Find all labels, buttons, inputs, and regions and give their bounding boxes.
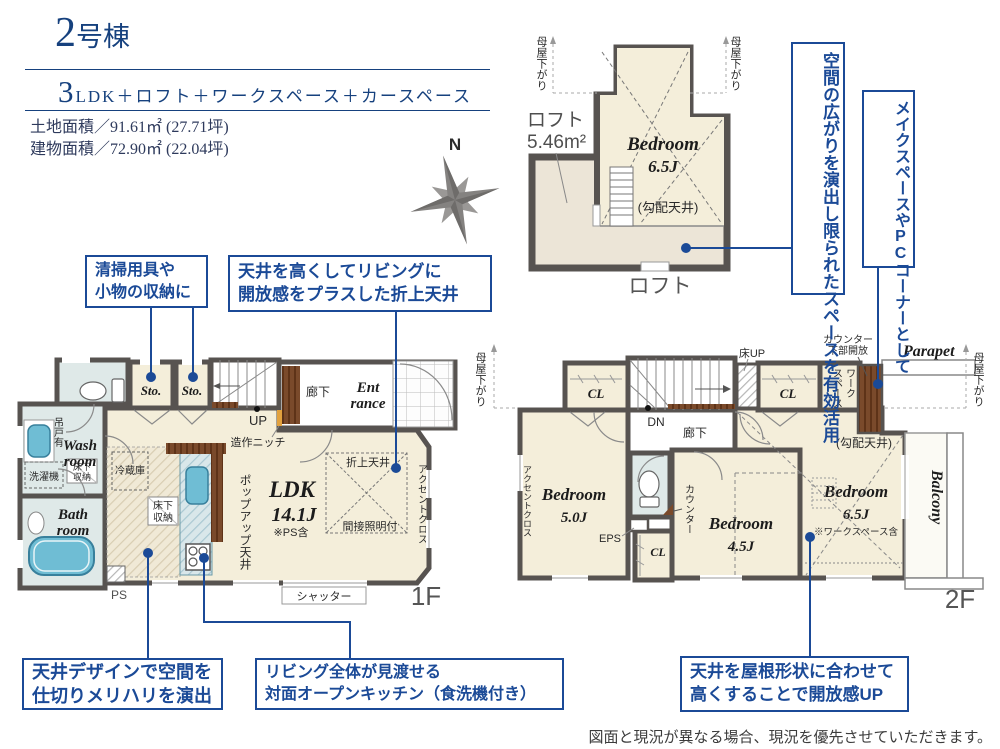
entrance-label-1: Ent (356, 380, 380, 396)
loft-area-label-1: ロフト (527, 110, 584, 131)
compass: N (400, 130, 510, 250)
bath-room-label-1: Bath (57, 507, 88, 523)
ps-label: PS (111, 588, 127, 602)
hall-label-1f: 廊下 (306, 384, 330, 399)
sto1-label: Sto. (141, 383, 162, 398)
svg-text:収納: 収納 (73, 471, 91, 482)
building-suffix: 号棟 (76, 22, 130, 52)
bedroom45-label: Bedroom (708, 514, 773, 533)
loft-door-opening (593, 205, 600, 226)
floorplan-flyer: 2号棟 3LDK＋ロフト＋ワークスペース＋カースペース 土地面積／91.61㎡ … (0, 0, 1000, 749)
callout-storage-line1: 清掃用具や (95, 260, 198, 282)
callout-dot-kitchen (199, 553, 209, 563)
toilet-icon-2f (639, 471, 659, 507)
dn-label: DN (647, 415, 664, 429)
bedroom65-size: 6.5J (843, 507, 870, 523)
cl-label-2: CL (780, 386, 797, 401)
area-info: 土地面積／91.61㎡ (27.71坪) 建物面積／72.90㎡ (22.04坪… (30, 117, 229, 162)
shutter-label: シャッター (297, 590, 352, 603)
callout-roof: 天井を屋根形状に合わせて 高くすることで開放感UP (680, 656, 909, 712)
callout-line-roof (809, 537, 811, 657)
sloped-ceiling-2f: (勾配天井) (836, 436, 892, 450)
callout-coffered-line2: 開放感をプラスした折上天井 (238, 284, 482, 307)
building-area: 建物面積／72.90㎡ (22.04坪) (30, 139, 229, 161)
loft-stairs (610, 167, 633, 226)
up-label: UP (249, 413, 267, 428)
wash-window (17, 426, 23, 458)
parapet-right (947, 433, 963, 581)
niche-label: 造作ニッチ (231, 435, 286, 449)
entrance-wood-floor (282, 366, 300, 424)
svg-text:母屋下がり: 母屋下がり (474, 352, 487, 407)
svg-text:間接照明付: 間接照明付 (343, 520, 398, 533)
land-area: 土地面積／91.61㎡ (27.71坪) (30, 117, 229, 139)
loft-room-size: 6.5J (648, 157, 678, 176)
ldk-label: LDK (268, 477, 317, 502)
building-title: 2号棟 (55, 12, 130, 54)
kitchen-sink-icon (186, 467, 208, 504)
loft-area-label-2: 5.46m² (527, 132, 586, 153)
ldk-size-label: 14.1J (272, 504, 318, 526)
callout-dot-coffered (391, 463, 401, 473)
toilet-bowl-icon (80, 382, 106, 400)
stairs-1f (211, 360, 279, 412)
building-number: 2 (55, 10, 76, 56)
plan-rooms-count: 3 (58, 74, 76, 109)
bath-room-label-2: room (57, 523, 90, 539)
svg-text:折上天井: 折上天井 (346, 455, 390, 469)
underfloor-storage-kitchen: 床下 収納 (148, 497, 178, 525)
sto2-label: Sto. (182, 383, 203, 398)
bedroom45-size: 4.5J (727, 539, 755, 555)
accent-cloth-label-2f: アクセントクロス (522, 465, 532, 537)
disclaimer: 図面と現況が異なる場合、現況を優先させていただきます。 (588, 726, 992, 747)
toilet-tank-icon (112, 379, 124, 402)
floor-up-label: 床UP (739, 346, 765, 360)
counter-label: カウンター (683, 484, 695, 534)
bedroom65-label: Bedroom (823, 482, 888, 501)
callout-coffered-line1: 天井を高くしてリビングに (238, 261, 482, 284)
popup-ceiling-label: ポップアップ天井 (238, 474, 252, 571)
callout-kitchen: リビング全体が見渡せる 対面オープンキッチン（食洗機付き） (255, 658, 564, 710)
eps-label: EPS (599, 533, 621, 545)
cl-label-1: CL (588, 386, 605, 401)
svg-text:収納: 収納 (153, 511, 173, 524)
fridge-label: 冷蔵庫 (115, 464, 145, 477)
callout-ceiling-line1: 天井デザインで空間を (32, 660, 213, 684)
callout-loft-line2: 限られたスペースを有効活用 (796, 222, 840, 443)
loft-eaves-right: 母屋下がり (690, 36, 742, 93)
niche-icon (277, 410, 282, 426)
callout-dot-loft (681, 243, 691, 253)
second-floor-plan: DN 廊下 CL CL CL EPS カウンター Bedroom 5.0J Be… (460, 330, 1000, 615)
ldk-note: ※PS含 (274, 525, 309, 539)
loft-sloped-ceiling: (勾配天井) (638, 200, 699, 215)
bedroom5-label: Bedroom (541, 485, 606, 504)
loft-room-name: Bedroom (626, 134, 699, 155)
floor-up-area (737, 364, 758, 408)
counter-wood-side (211, 443, 223, 542)
svg-text:母屋下がり: 母屋下がり (535, 36, 548, 91)
callout-dot-pc (873, 379, 883, 389)
plan-type: 3LDK＋ロフト＋ワークスペース＋カースペース (58, 74, 472, 110)
wash-basin-icon (28, 425, 50, 457)
callout-loft-line1: 空間の広がりを演出し (796, 52, 840, 222)
callout-dot-roof (805, 532, 815, 542)
cl-label-3: CL (650, 545, 665, 559)
callout-pc-line2: PCコーナーとして (867, 228, 910, 374)
loft-window (641, 262, 669, 271)
callout-loft-space: 空間の広がりを演出し 限られたスペースを有効活用 (791, 42, 845, 295)
eaves-2f-left: 母屋下がり (474, 344, 518, 408)
floor1-caption: 1F (411, 581, 441, 610)
balcony-label: Balcony (928, 469, 945, 525)
callout-line-loft (686, 247, 791, 249)
callout-line-ceiling (147, 553, 149, 658)
hanging-cabinet-label: 吊戸有 (52, 417, 64, 448)
accent-cloth-label-1f: アクセントクロス (416, 464, 428, 544)
wash-room-label-1: Wash (63, 438, 97, 454)
compass-north-label: N (449, 135, 461, 154)
svg-text:母屋下がり: 母屋下がり (972, 352, 985, 407)
callout-line-kitchen-c (349, 621, 351, 658)
callout-dot-storage-1 (146, 372, 156, 382)
workspace-label-1: ワーク (844, 368, 855, 398)
bedroom5-size: 5.0J (561, 510, 588, 526)
callout-line-kitchen-a (203, 558, 205, 622)
callout-coffered: 天井を高くしてリビングに 開放感をプラスした折上天井 (228, 255, 492, 312)
loft-plan: 母屋下がり 母屋下がり ロフト 5.46m² Bedroom 6.5J (勾配天… (505, 25, 760, 300)
svg-text:床下: 床下 (153, 499, 173, 512)
callout-kitchen-line1: リビング全体が見渡せる (265, 662, 554, 684)
callout-pc-corner: メイクスペースや PCコーナーとして (862, 90, 915, 268)
callout-line-storage-1 (150, 308, 152, 377)
floor2-caption: 2F (945, 584, 975, 614)
plan-type-text: LDK＋ロフト＋ワークスペース＋カースペース (76, 87, 473, 106)
compass-star-icon (400, 144, 510, 250)
callout-storage: 清掃用具や 小物の収納に (85, 255, 208, 308)
divider (25, 110, 490, 111)
wash-room-label-2: room (64, 454, 97, 470)
callout-roof-line2: 高くすることで開放感UP (690, 684, 899, 707)
hall-label-2f: 廊下 (683, 425, 707, 440)
callout-line-storage-2 (192, 308, 194, 377)
entrance-label-2: rance (351, 396, 386, 412)
callout-ceiling-design: 天井デザインで空間を 仕切りメリハリを演出 (22, 658, 223, 710)
callout-kitchen-line2: 対面オープンキッチン（食洗機付き） (265, 684, 554, 706)
bedroom65-note: ※ワークスペース含 (814, 526, 899, 538)
loft-eaves-left: 母屋下がり (535, 36, 597, 93)
first-floor-plan: Sto. Sto. UP 洗濯機 床下 (8, 348, 470, 610)
callout-ceiling-line2: 仕切りメリハリを演出 (32, 684, 213, 708)
callout-line-kitchen-b (203, 621, 351, 623)
callout-dot-storage-2 (188, 372, 198, 382)
callout-roof-line1: 天井を屋根形状に合わせて (690, 661, 899, 684)
pipe-space (107, 566, 125, 582)
svg-text:母屋下がり: 母屋下がり (729, 36, 742, 91)
toilet-window (62, 357, 90, 363)
callout-dot-ceiling (143, 548, 153, 558)
bath-window (17, 540, 23, 568)
callout-storage-line2: 小物の収納に (95, 282, 198, 304)
entrance-porch (393, 361, 453, 427)
loft-caption: ロフト (629, 275, 692, 298)
washer-label: 洗濯機 (29, 470, 59, 483)
callout-pc-line1: メイクスペースや (867, 100, 910, 228)
callout-line-coffered (395, 311, 397, 468)
divider (25, 69, 490, 70)
